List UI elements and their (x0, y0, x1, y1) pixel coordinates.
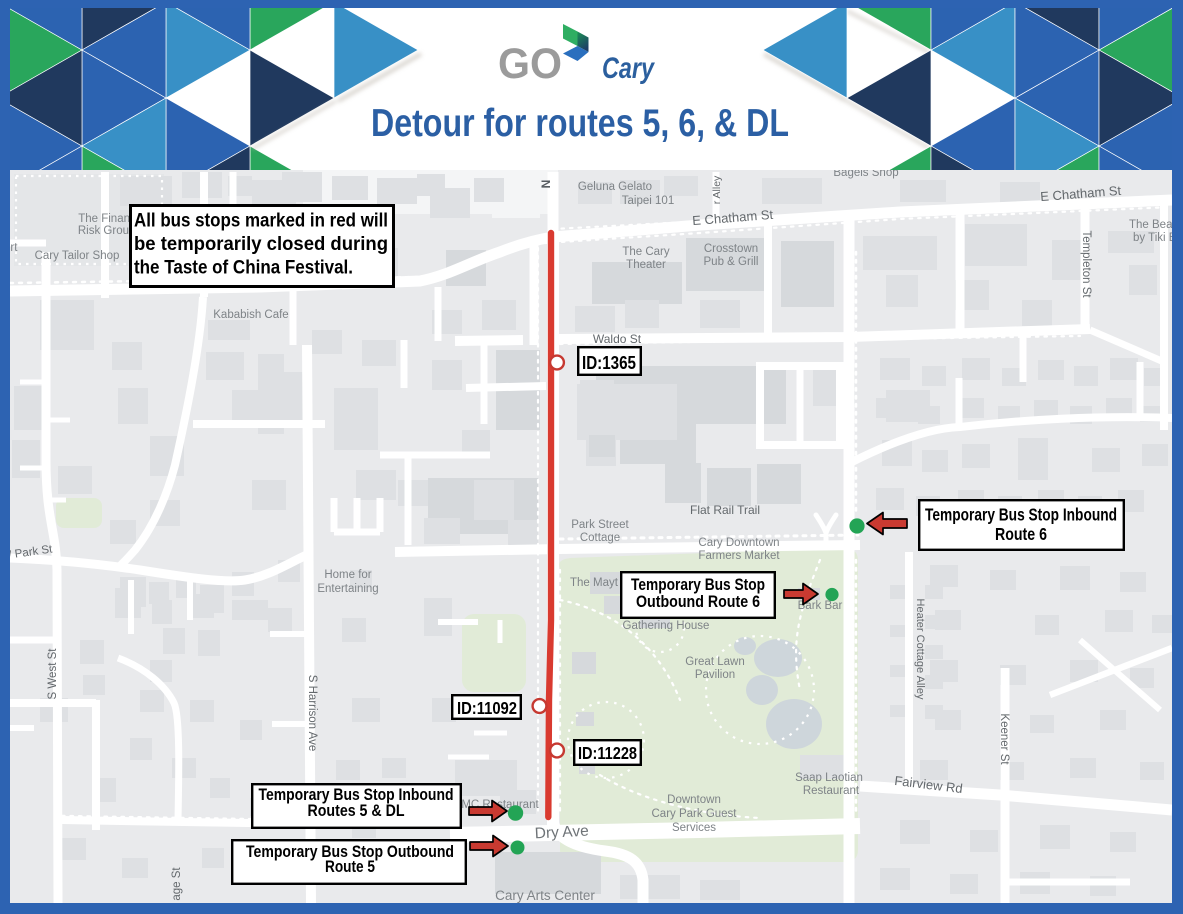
svg-text:ID:11092: ID:11092 (457, 698, 517, 718)
svg-text:Theater: Theater (626, 259, 666, 271)
svg-text:Cottage: Cottage (580, 532, 620, 544)
svg-text:ort: ort (10, 242, 18, 254)
svg-text:Farmers Market: Farmers Market (698, 550, 780, 562)
svg-text:S Harrison Ave: S Harrison Ave (306, 675, 318, 752)
svg-text:Routes 5 & DL: Routes 5 & DL (308, 802, 405, 820)
svg-text:Home for: Home for (324, 569, 371, 581)
svg-text:Entertaining: Entertaining (317, 583, 378, 595)
svg-text:Dry Ave: Dry Ave (534, 823, 589, 843)
svg-text:Taipei 101: Taipei 101 (622, 195, 674, 207)
svg-text:ID:1365: ID:1365 (582, 353, 636, 373)
svg-text:Waldo St: Waldo St (593, 332, 642, 346)
svg-text:Cary Park Guest: Cary Park Guest (652, 808, 738, 820)
svg-text:Cary Downtown: Cary Downtown (698, 537, 779, 549)
svg-text:Route 6: Route 6 (995, 524, 1047, 544)
svg-text:Kababish Cafe: Kababish Cafe (213, 309, 288, 321)
svg-text:Detour for routes 5, 6, & DL: Detour for routes 5, 6, & DL (371, 102, 789, 145)
svg-text:Pub & Grill: Pub & Grill (704, 256, 759, 268)
svg-text:r Alley: r Alley (711, 175, 723, 204)
svg-text:Temporary Bus Stop Inbound: Temporary Bus Stop Inbound (925, 505, 1117, 525)
svg-text:Templeton St: Templeton St (1080, 230, 1092, 298)
svg-text:Geluna Gelato: Geluna Gelato (578, 181, 652, 193)
svg-text:Park Street: Park Street (571, 519, 629, 531)
svg-text:be temporarily closed during: be temporarily closed during (134, 234, 388, 255)
svg-text:Cary: Cary (602, 52, 655, 85)
svg-text:Bagels Shop: Bagels Shop (833, 170, 898, 179)
svg-text:Crosstown: Crosstown (704, 243, 758, 255)
svg-text:Temporary Bus Stop: Temporary Bus Stop (631, 576, 765, 594)
svg-text:Outbound Route 6: Outbound Route 6 (636, 593, 760, 611)
svg-text:Great Lawn: Great Lawn (685, 656, 744, 668)
svg-text:Keener St: Keener St (998, 713, 1010, 765)
svg-text:the Taste of China Festival.: the Taste of China Festival. (134, 258, 353, 279)
svg-text:The Bead: The Bead (1129, 219, 1172, 231)
svg-text:The Mayt: The Mayt (570, 577, 619, 589)
svg-text:Flat Rail Trail: Flat Rail Trail (690, 503, 760, 517)
svg-text:Cary Arts Center: Cary Arts Center (495, 888, 595, 903)
svg-text:age St: age St (171, 867, 183, 901)
svg-text:Pavilion: Pavilion (695, 669, 735, 681)
svg-text:The Finan: The Finan (78, 213, 130, 225)
svg-text:All bus stops marked in red wi: All bus stops marked in red will (134, 211, 388, 232)
svg-text:Restaurant: Restaurant (803, 785, 860, 797)
svg-text:Saap Laotian: Saap Laotian (795, 772, 863, 784)
svg-text:S West St: S West St (47, 648, 59, 700)
svg-text:The Cary: The Cary (622, 246, 670, 258)
svg-text:Cary Tailor Shop: Cary Tailor Shop (35, 250, 120, 262)
svg-text:Heater Cottage Alley: Heater Cottage Alley (914, 599, 926, 700)
svg-text:Services: Services (672, 822, 716, 834)
svg-text:Risk Grou: Risk Grou (78, 225, 129, 237)
svg-text:N: N (539, 180, 553, 189)
svg-text:Downtown: Downtown (667, 794, 721, 806)
svg-text:Gathering House: Gathering House (623, 620, 710, 632)
svg-text:GO: GO (498, 42, 562, 84)
svg-text:Route 5: Route 5 (325, 858, 375, 876)
svg-text:ID:11228: ID:11228 (578, 743, 637, 763)
svg-text:by Tiki B: by Tiki B (1133, 232, 1172, 244)
